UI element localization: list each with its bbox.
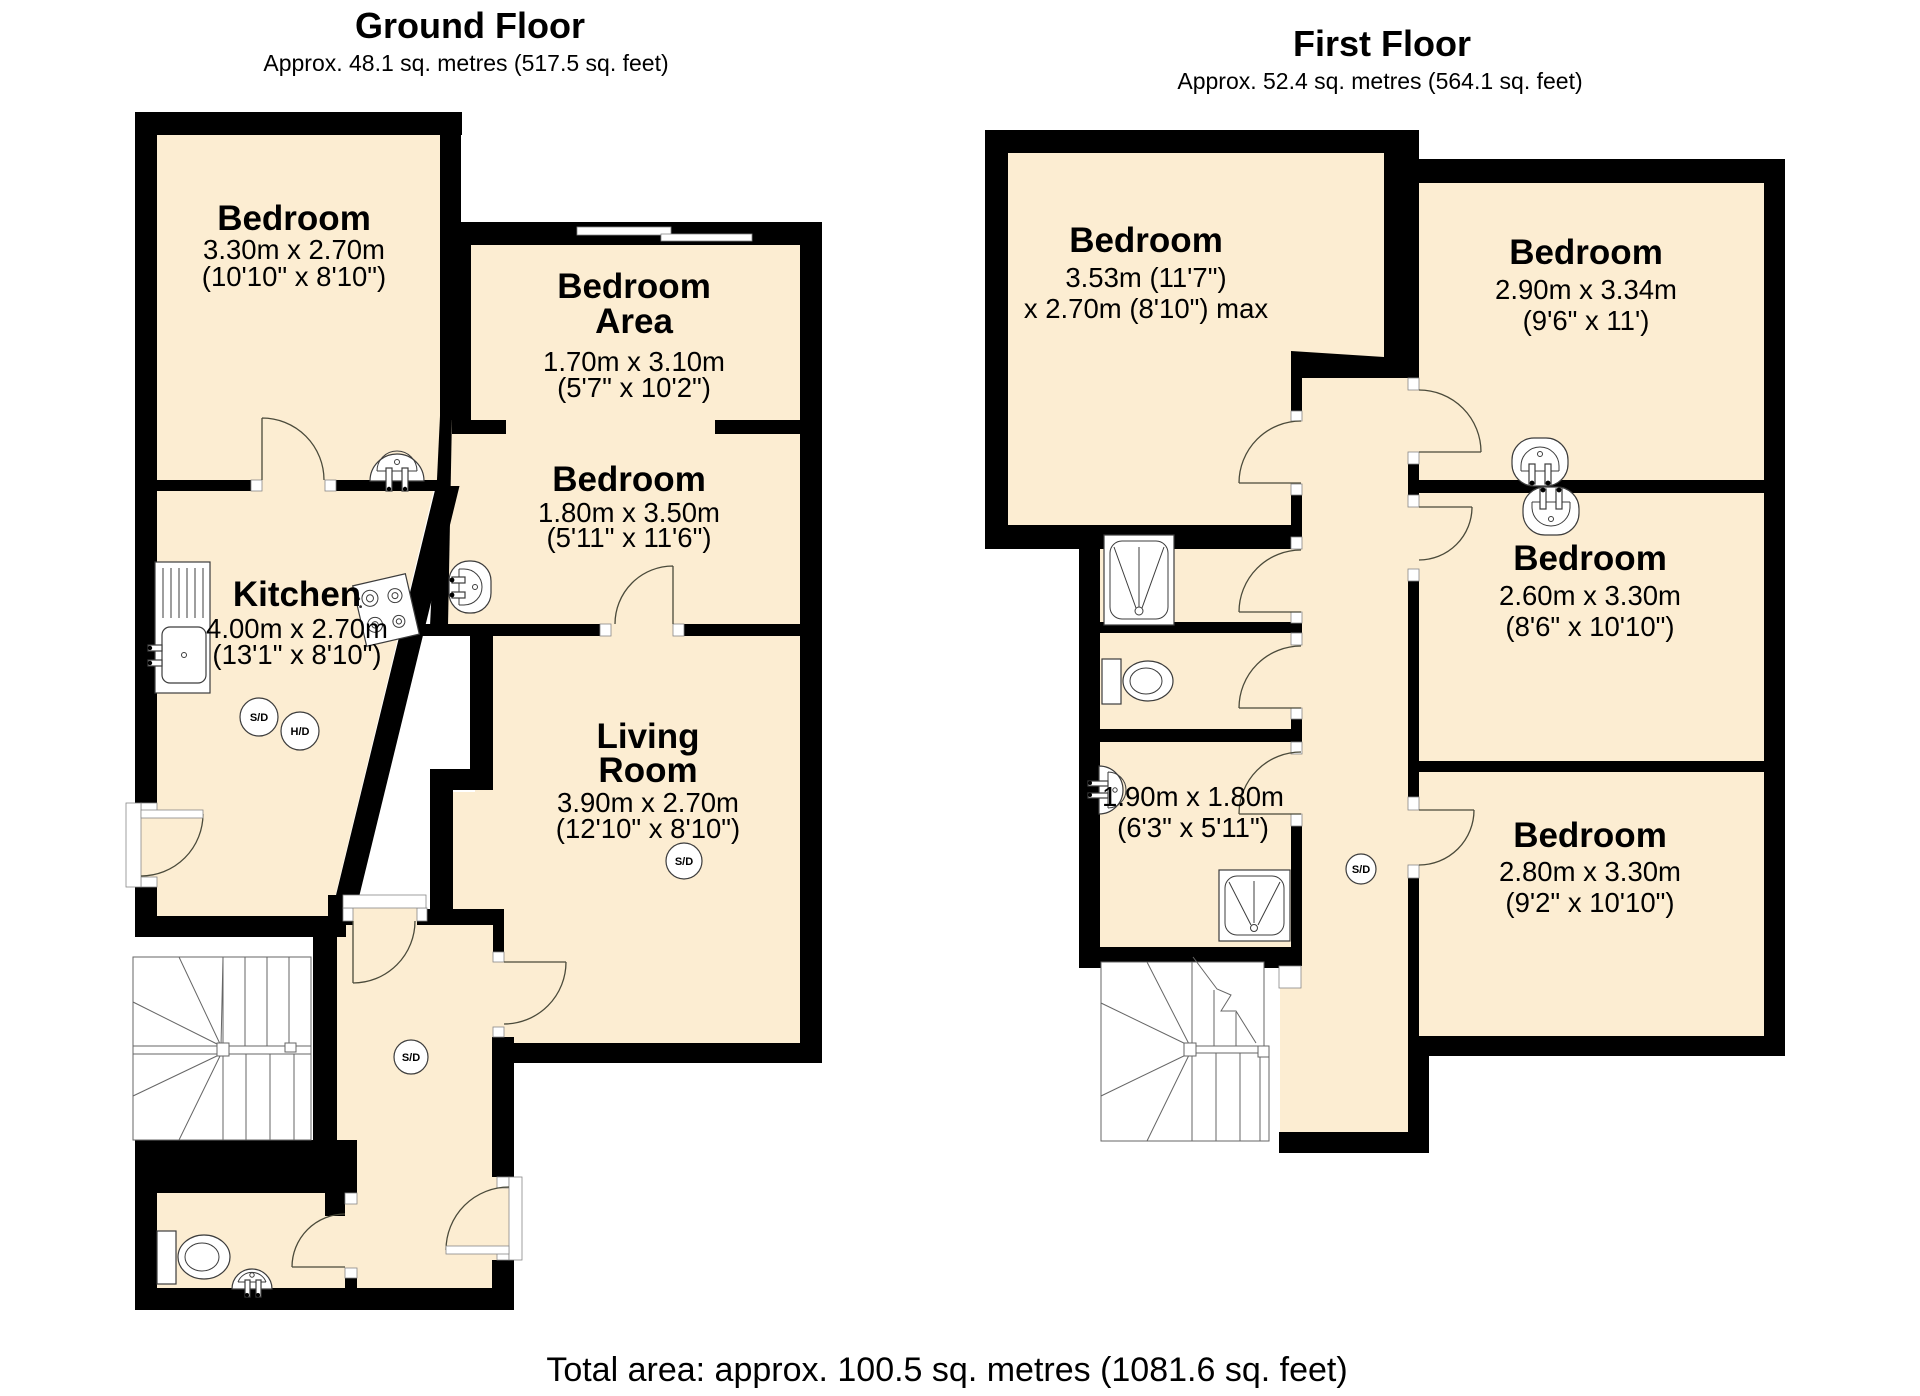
svg-text:Bedroom: Bedroom: [217, 199, 371, 238]
svg-text:Bedroom: Bedroom: [1513, 816, 1667, 855]
svg-text:2.80m x 3.30m: 2.80m x 3.30m: [1499, 856, 1681, 887]
svg-text:(9'2" x 10'10"): (9'2" x 10'10"): [1505, 887, 1674, 918]
svg-text:Bedroom: Bedroom: [1069, 221, 1223, 260]
svg-text:x 2.70m (8'10") max: x 2.70m (8'10") max: [1024, 293, 1269, 324]
svg-text:Ground Floor: Ground Floor: [355, 5, 585, 46]
svg-text:S/D: S/D: [402, 1052, 420, 1064]
svg-text:(5'11" x 11'6"): (5'11" x 11'6"): [546, 522, 711, 553]
svg-text:Kitchen: Kitchen: [233, 575, 361, 614]
svg-text:(9'6" x 11'): (9'6" x 11'): [1523, 305, 1650, 336]
svg-text:Approx. 52.4 sq. metres (564.1: Approx. 52.4 sq. metres (564.1 sq. feet): [1177, 68, 1582, 94]
svg-text:(6'3" x 5'11"): (6'3" x 5'11"): [1117, 812, 1269, 843]
svg-text:(12'10" x 8'10"): (12'10" x 8'10"): [556, 813, 740, 844]
svg-text:Area: Area: [595, 302, 673, 341]
svg-text:1.90m x 1.80m: 1.90m x 1.80m: [1102, 781, 1284, 812]
svg-text:(5'7" x 10'2"): (5'7" x 10'2"): [557, 372, 711, 403]
svg-text:S/D: S/D: [675, 856, 693, 868]
svg-text:Total area: approx. 100.5 sq.: Total area: approx. 100.5 sq. metres (10…: [546, 1351, 1347, 1389]
svg-text:Bedroom: Bedroom: [552, 460, 706, 499]
svg-text:(8'6" x 10'10"): (8'6" x 10'10"): [1505, 611, 1674, 642]
svg-text:S/D: S/D: [1352, 864, 1370, 876]
svg-text:2.60m x 3.30m: 2.60m x 3.30m: [1499, 580, 1681, 611]
svg-text:(13'1" x 8'10"): (13'1" x 8'10"): [212, 639, 381, 670]
svg-text:First Floor: First Floor: [1293, 23, 1471, 64]
svg-text:Bedroom: Bedroom: [1513, 539, 1667, 578]
svg-text:3.53m (11'7"): 3.53m (11'7"): [1065, 262, 1226, 293]
svg-text:S/D: S/D: [250, 712, 268, 724]
svg-text:Approx. 48.1 sq. metres (517.5: Approx. 48.1 sq. metres (517.5 sq. feet): [263, 50, 668, 76]
svg-text:(10'10" x 8'10"): (10'10" x 8'10"): [202, 261, 386, 292]
svg-text:H/D: H/D: [291, 726, 310, 738]
svg-text:Bedroom: Bedroom: [1509, 233, 1663, 272]
svg-text:Bedroom: Bedroom: [557, 267, 711, 306]
svg-text:2.90m x 3.34m: 2.90m x 3.34m: [1495, 274, 1677, 305]
svg-text:Room: Room: [598, 751, 697, 790]
